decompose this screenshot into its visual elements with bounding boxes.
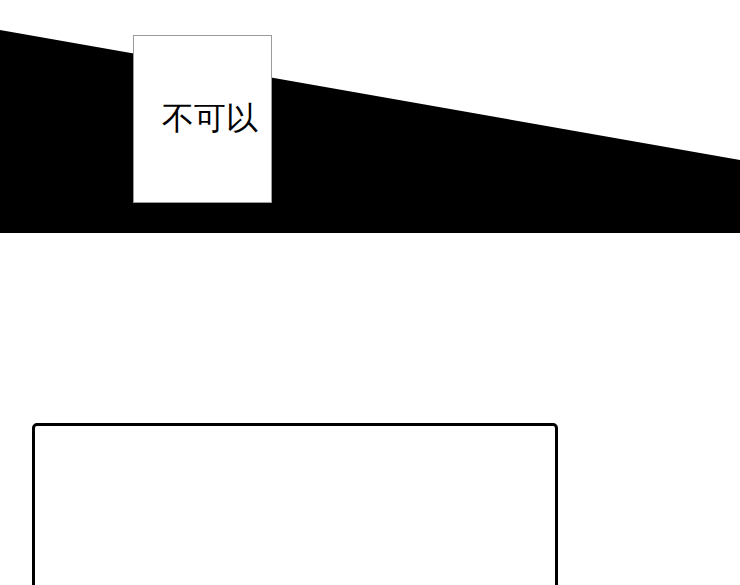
bottom-comic-panel [32,423,558,585]
speech-bubble-text: 不可以， [134,101,290,136]
speech-bubble: 不可以， [133,35,272,203]
black-wedge-shape [0,30,740,233]
comic-page: 不可以， [0,0,740,585]
